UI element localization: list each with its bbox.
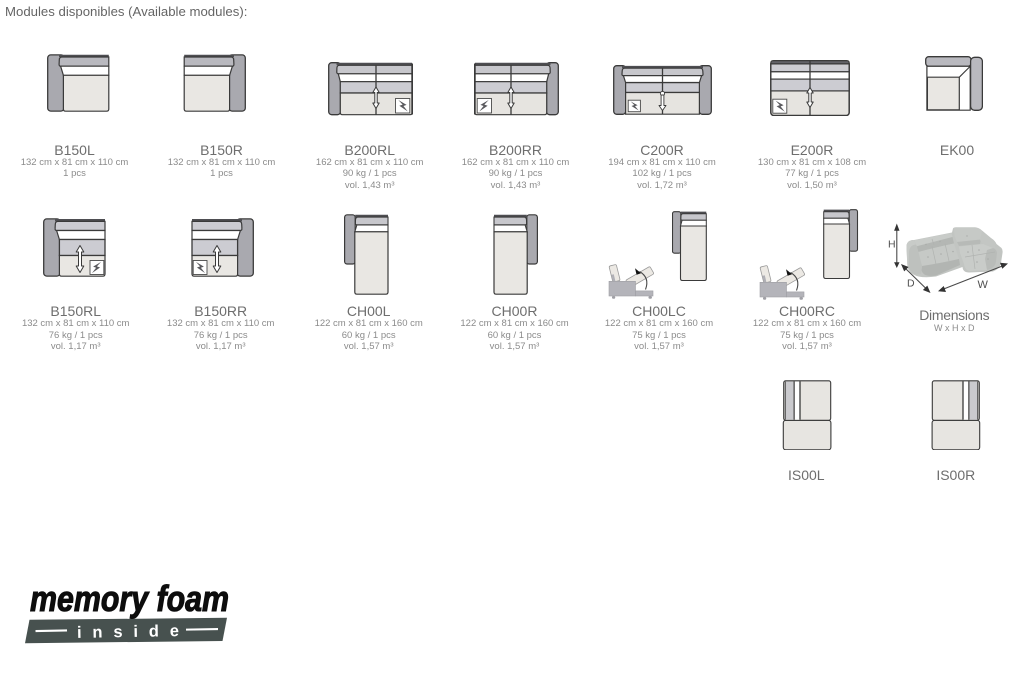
svg-text:memory foam: memory foam — [30, 578, 229, 619]
svg-text:D: D — [907, 278, 915, 290]
svg-text:W: W — [978, 279, 989, 291]
svg-text:H: H — [888, 239, 896, 251]
